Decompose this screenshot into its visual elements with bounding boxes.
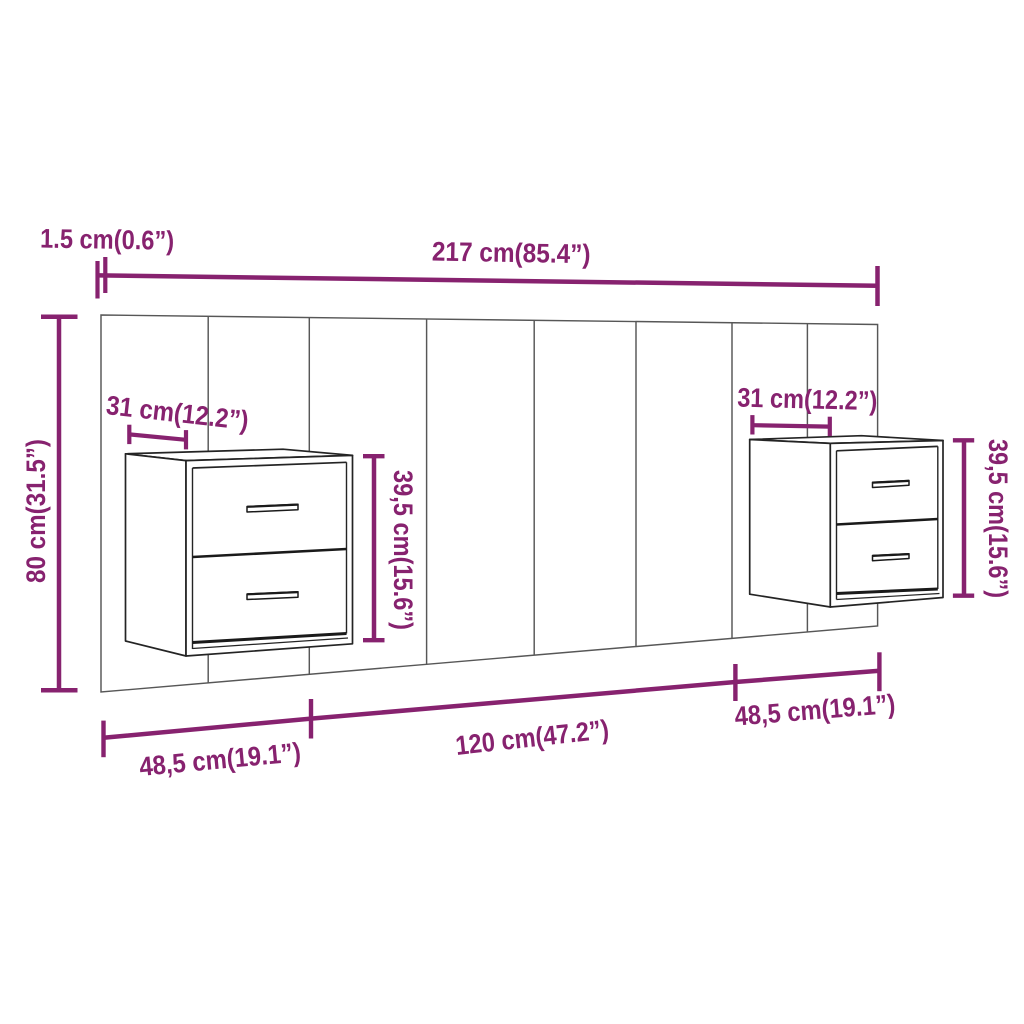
svg-text:80 cm(31.5”): 80 cm(31.5”)	[21, 439, 51, 583]
svg-text:217 cm(85.4”): 217 cm(85.4”)	[432, 237, 591, 270]
svg-text:39,5 cm(15.6”): 39,5 cm(15.6”)	[983, 439, 1013, 598]
svg-text:39,5 cm(15.6”): 39,5 cm(15.6”)	[388, 470, 418, 630]
svg-text:31 cm(12.2”): 31 cm(12.2”)	[737, 383, 878, 417]
svg-text:1.5 cm(0.6”): 1.5 cm(0.6”)	[40, 224, 175, 256]
